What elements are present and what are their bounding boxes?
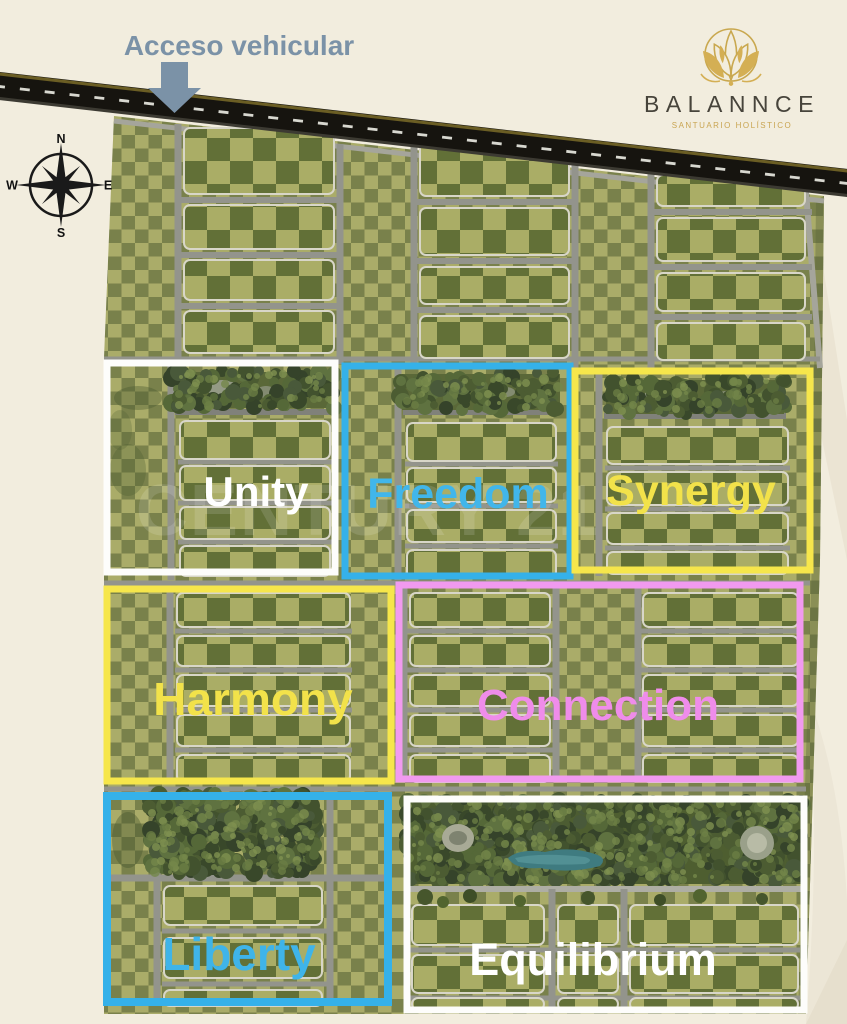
- svg-text:BALANNCE: BALANNCE: [644, 91, 820, 117]
- svg-text:Equilibrium: Equilibrium: [469, 934, 717, 985]
- svg-text:SANTUARIO HOLÍSTICO: SANTUARIO HOLÍSTICO: [672, 121, 793, 130]
- svg-text:Liberty: Liberty: [162, 928, 316, 980]
- svg-text:N: N: [56, 132, 65, 146]
- svg-text:Synergy: Synergy: [606, 467, 776, 515]
- svg-text:Harmony: Harmony: [153, 673, 353, 725]
- svg-text:Connection: Connection: [477, 681, 719, 730]
- svg-text:Freedom: Freedom: [367, 470, 549, 518]
- svg-text:W: W: [6, 179, 18, 193]
- svg-text:E: E: [104, 179, 112, 193]
- svg-text:Acceso vehicular: Acceso vehicular: [124, 30, 354, 61]
- svg-text:S: S: [57, 226, 65, 240]
- svg-text:Unity: Unity: [204, 468, 310, 515]
